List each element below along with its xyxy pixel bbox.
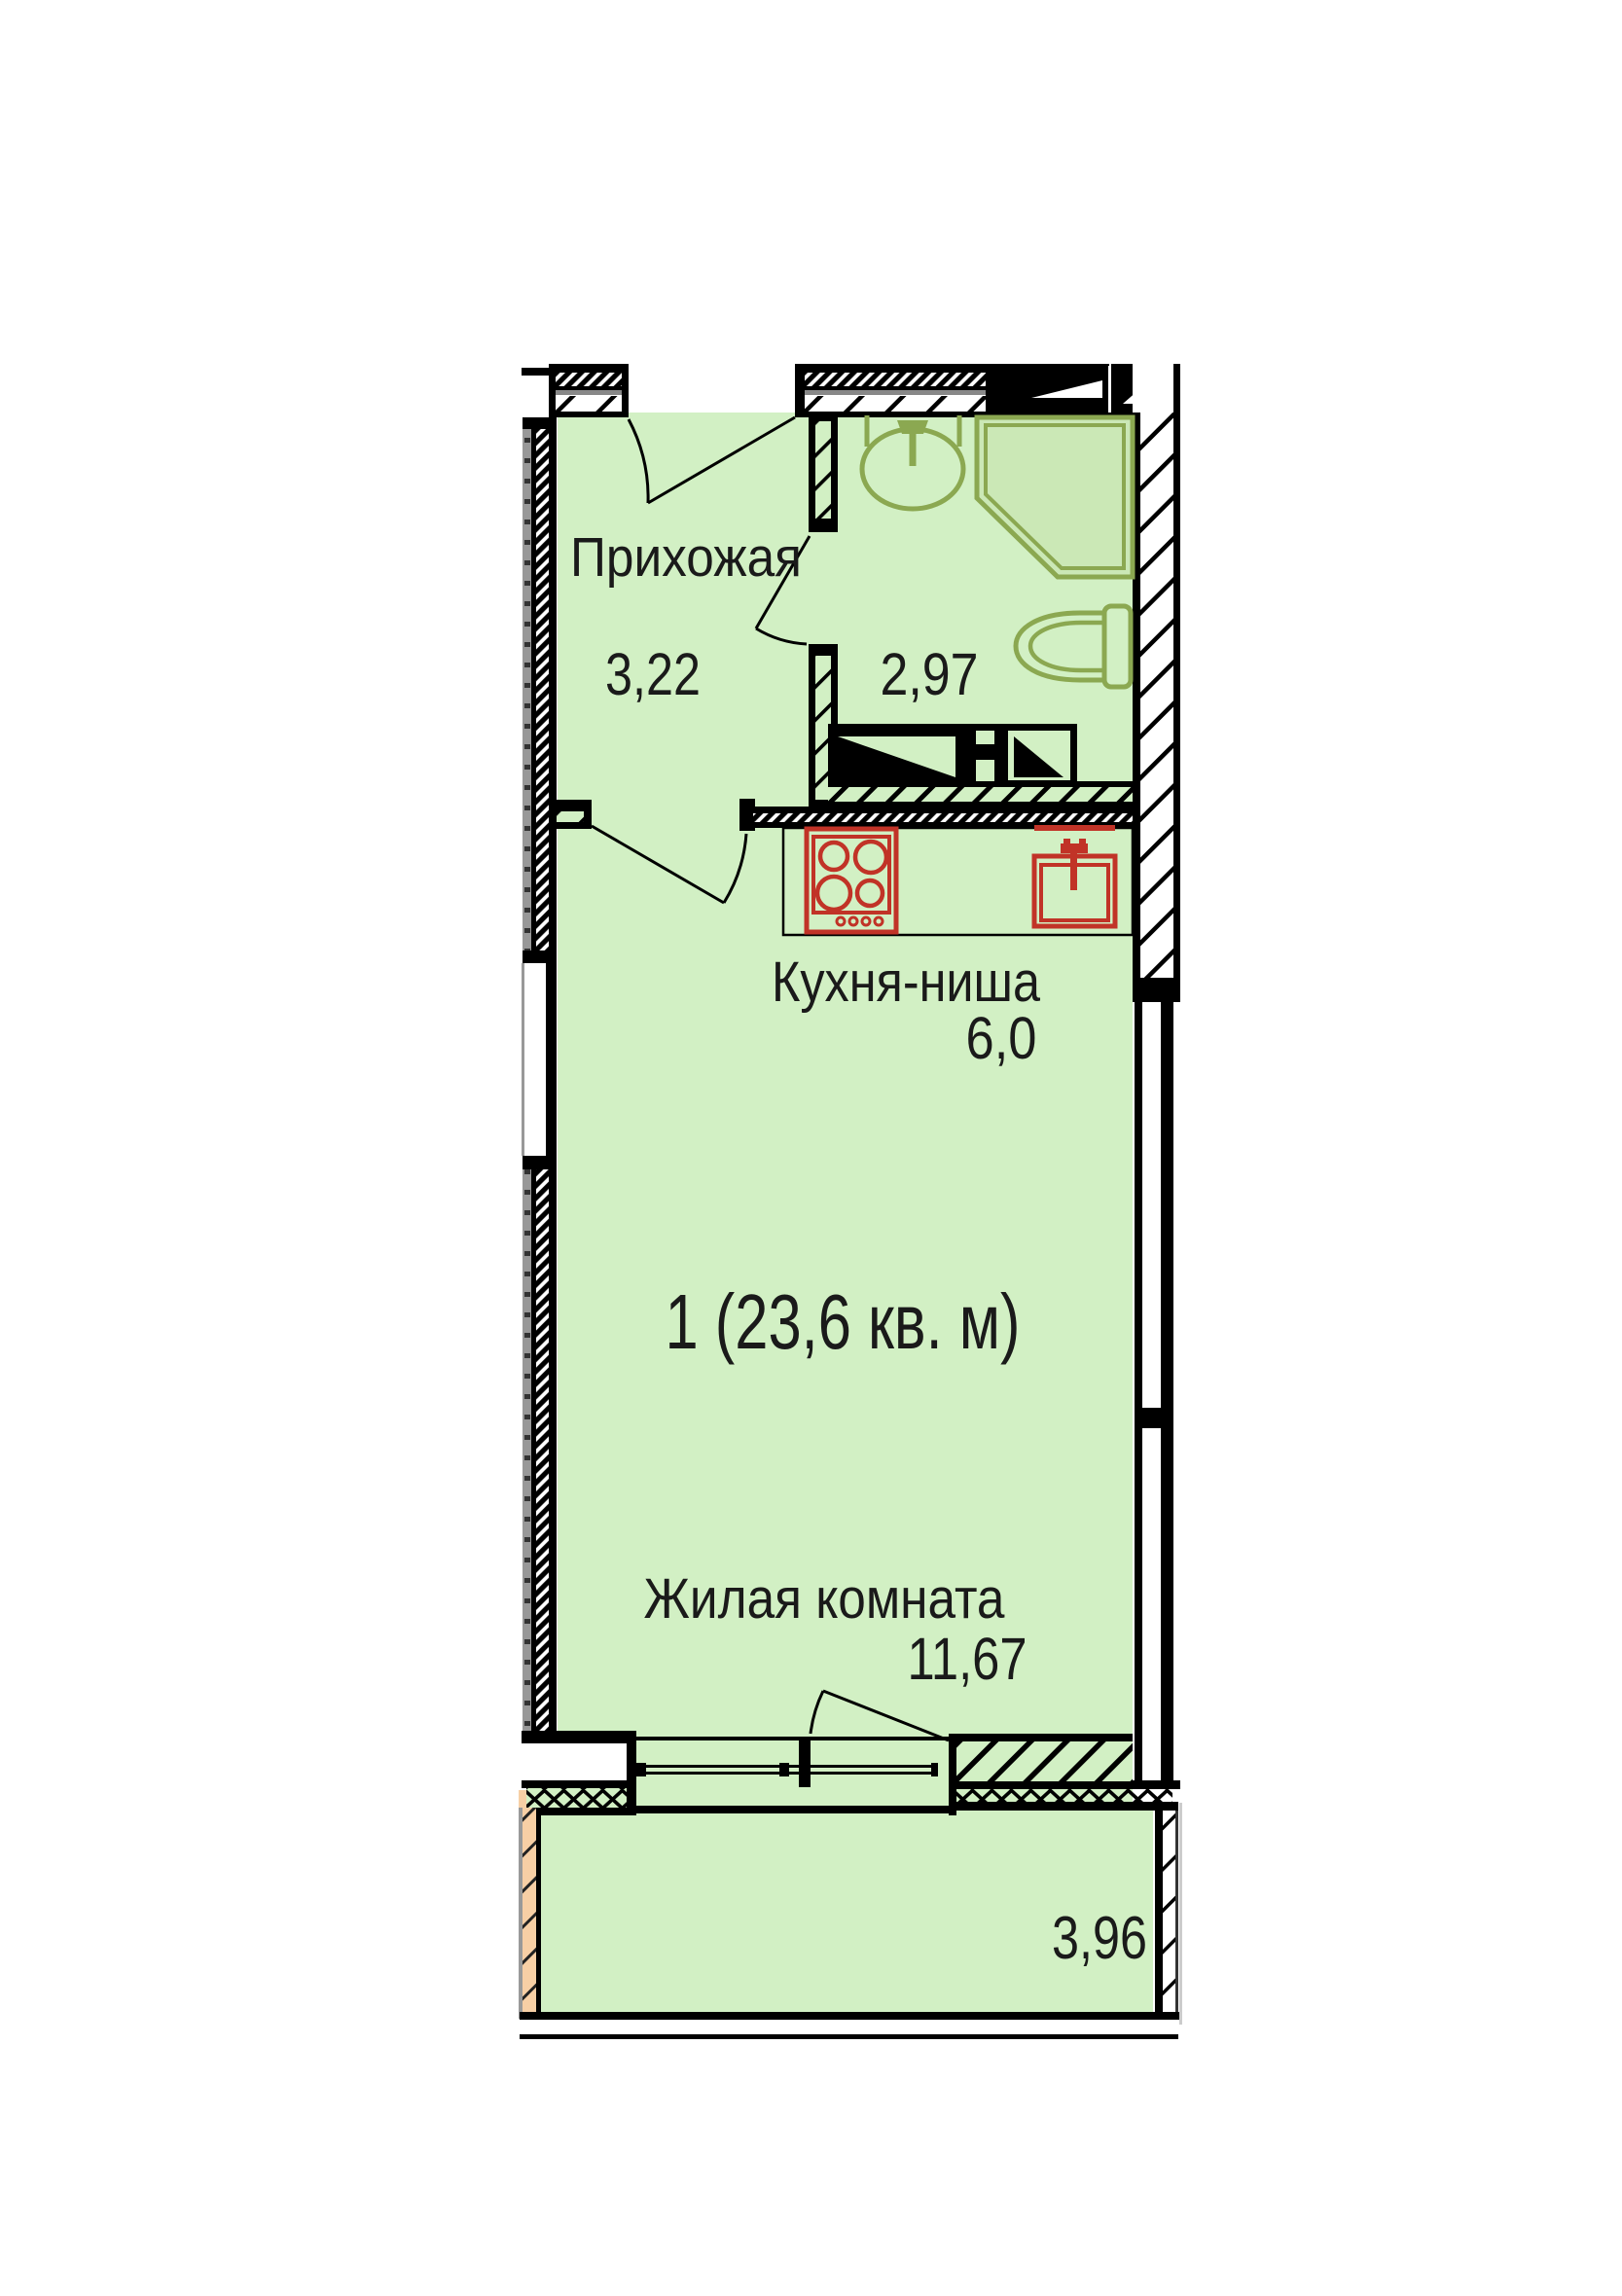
svg-text:6,0: 6,0 — [966, 1005, 1037, 1071]
svg-text:11,67: 11,67 — [908, 1626, 1027, 1692]
svg-text:3,22: 3,22 — [605, 641, 701, 707]
svg-text:1 (23,6 кв. м): 1 (23,6 кв. м) — [666, 1278, 1021, 1365]
svg-text:Жилая комната: Жилая комната — [644, 1567, 1006, 1631]
svg-text:2,97: 2,97 — [881, 641, 979, 707]
svg-text:Прихожая: Прихожая — [570, 526, 802, 589]
svg-text:3,96: 3,96 — [1052, 1905, 1147, 1972]
